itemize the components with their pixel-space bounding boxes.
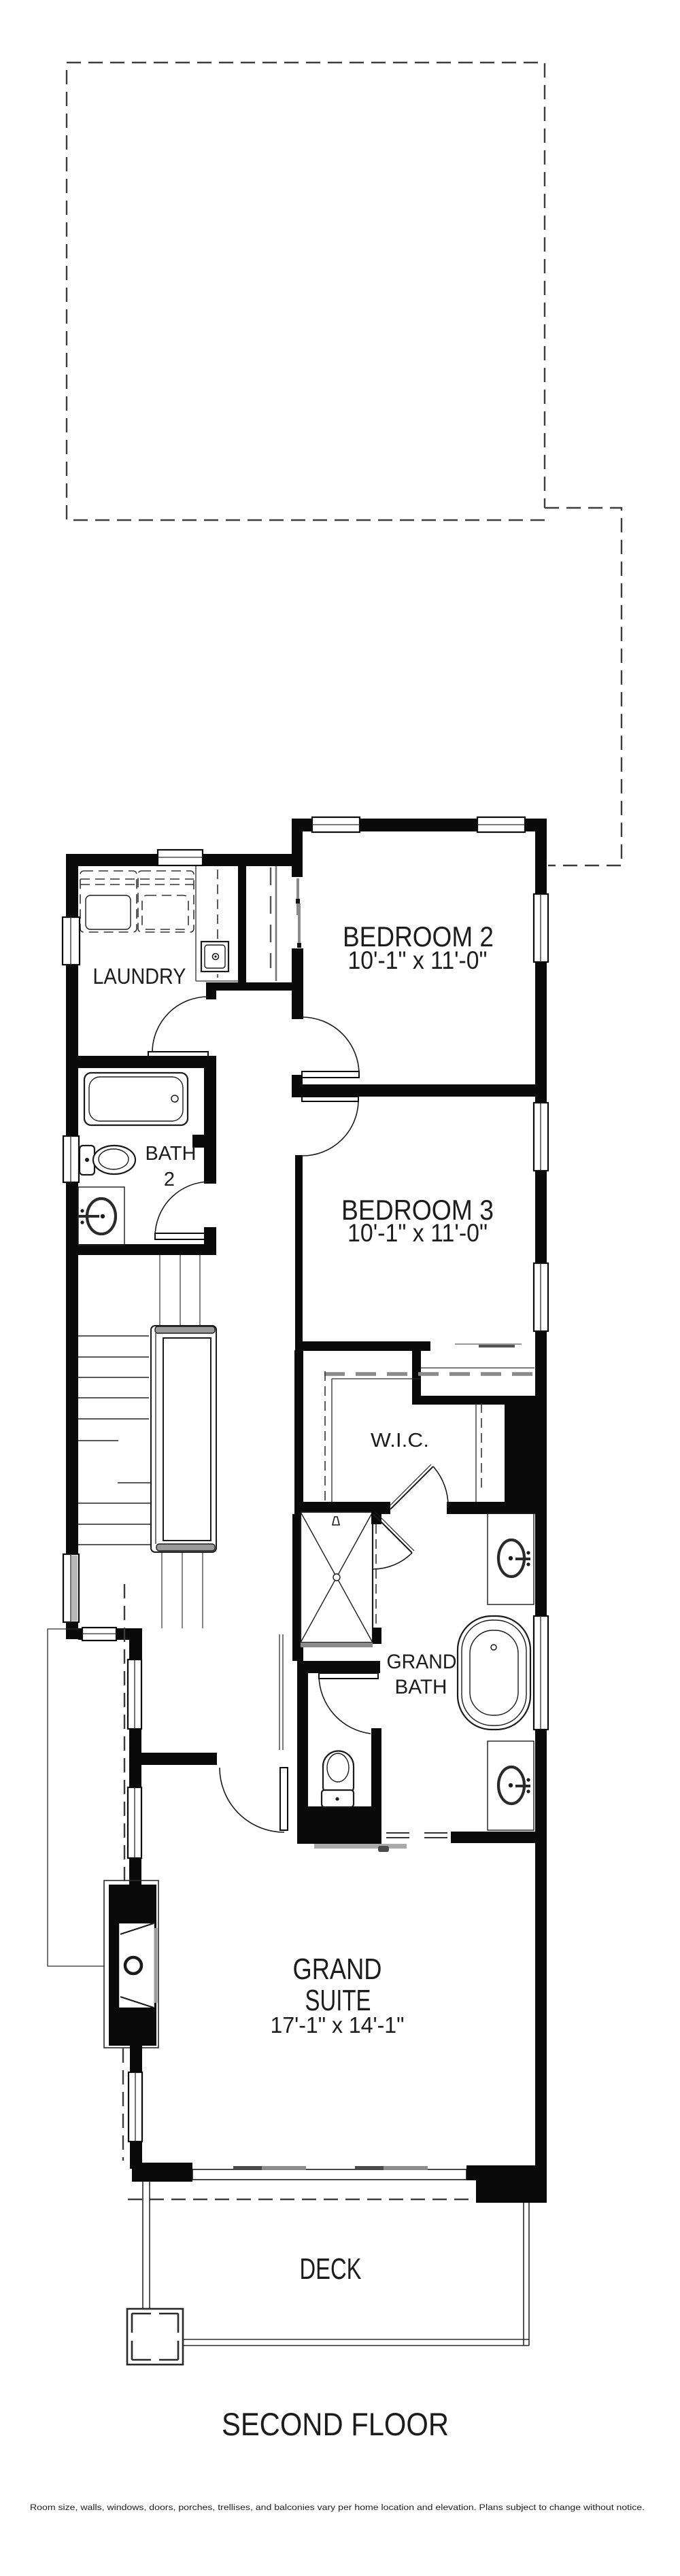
svg-text:SECOND FLOOR: SECOND FLOOR <box>222 2406 449 2442</box>
svg-text:BATH: BATH <box>395 1676 447 1698</box>
svg-text:GRAND: GRAND <box>293 1953 382 1986</box>
svg-text:GRAND: GRAND <box>387 1651 457 1673</box>
svg-text:10'-1" x 11'-0": 10'-1" x 11'-0" <box>348 946 488 974</box>
svg-text:2: 2 <box>164 1169 175 1190</box>
svg-text:BATH: BATH <box>146 1143 197 1165</box>
svg-text:LAUNDRY: LAUNDRY <box>93 964 186 989</box>
svg-text:10'-1" x 11'-0": 10'-1" x 11'-0" <box>347 1219 488 1247</box>
svg-text:Room size, walls, windows, doo: Room size, walls, windows, doors, porche… <box>30 2503 645 2512</box>
svg-text:DECK: DECK <box>300 2252 362 2286</box>
svg-text:17'-1" x 14'-1": 17'-1" x 14'-1" <box>271 2012 405 2038</box>
svg-text:W.I.C.: W.I.C. <box>371 1430 429 1452</box>
